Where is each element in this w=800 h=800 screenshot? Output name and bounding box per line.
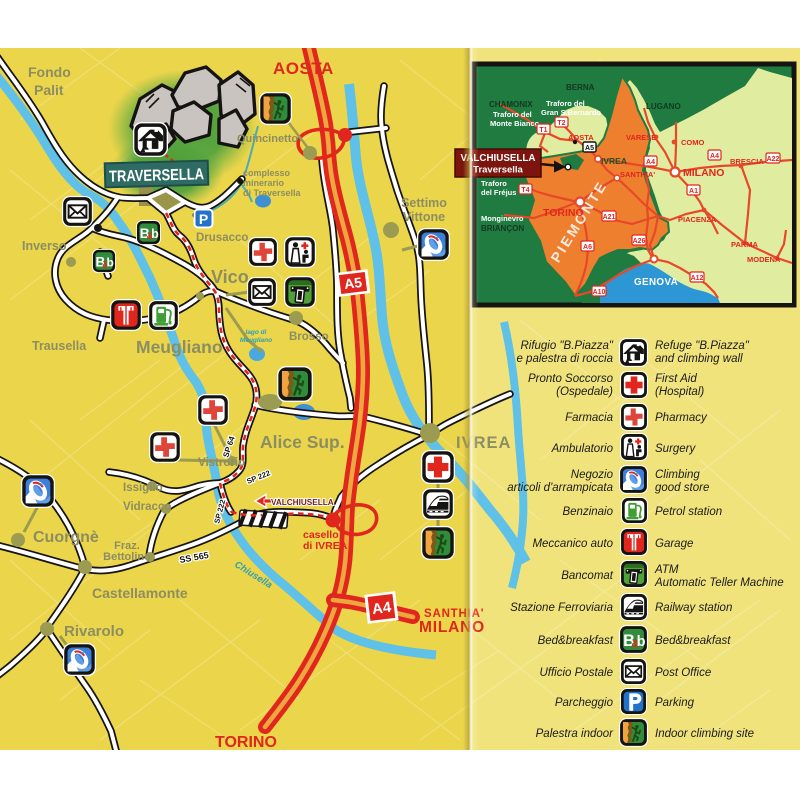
svg-text:Garage: Garage	[655, 538, 693, 550]
svg-text:Surgery: Surgery	[655, 443, 697, 455]
svg-text:Cuorgnè: Cuorgnè	[33, 529, 99, 546]
svg-text:First Aid: First Aid	[655, 373, 697, 385]
svg-text:A4: A4	[646, 159, 655, 166]
svg-text:Rifugio "B.Piazza": Rifugio "B.Piazza"	[520, 340, 613, 352]
svg-text:(Ospedale): (Ospedale)	[556, 386, 613, 398]
svg-text:MILANO: MILANO	[683, 167, 724, 179]
svg-text:TORINO: TORINO	[543, 207, 584, 219]
svg-text:A26: A26	[633, 238, 646, 245]
svg-text:Parcheggio: Parcheggio	[555, 697, 614, 709]
svg-text:Bettolino: Bettolino	[103, 551, 151, 563]
svg-text:Trausella: Trausella	[32, 339, 87, 353]
svg-text:VALCHIUSELLA: VALCHIUSELLA	[271, 498, 334, 507]
svg-text:(Hospital): (Hospital)	[655, 386, 704, 398]
svg-text:Meugliano: Meugliano	[136, 337, 223, 357]
svg-text:Settimo: Settimo	[401, 196, 447, 210]
svg-text:Issiglio: Issiglio	[123, 482, 163, 494]
svg-text:PIACENZA: PIACENZA	[678, 215, 717, 224]
svg-text:Refuge "B.Piazza": Refuge "B.Piazza"	[655, 340, 750, 352]
svg-text:T2: T2	[557, 120, 565, 127]
svg-text:Ufficio Postale: Ufficio Postale	[539, 667, 613, 679]
svg-text:VARESE: VARESE	[626, 133, 656, 142]
svg-text:Palestra indoor: Palestra indoor	[536, 728, 615, 740]
svg-text:lago di: lago di	[246, 329, 267, 336]
svg-text:di IVREA: di IVREA	[303, 540, 348, 552]
svg-text:Pharmacy: Pharmacy	[655, 412, 708, 424]
svg-text:Quincinetto: Quincinetto	[237, 133, 298, 145]
svg-text:Negozio: Negozio	[571, 469, 614, 481]
svg-text:Palit: Palit	[34, 82, 64, 98]
svg-text:good store: good store	[655, 482, 709, 494]
svg-text:e palestra di roccia: e palestra di roccia	[516, 353, 613, 365]
svg-text:A5: A5	[585, 145, 594, 152]
svg-text:PARMA: PARMA	[731, 240, 759, 249]
svg-text:Rivarolo: Rivarolo	[64, 623, 124, 640]
svg-text:di Traversella: di Traversella	[243, 188, 302, 198]
svg-text:Climbing: Climbing	[655, 469, 700, 481]
svg-text:Parking: Parking	[655, 697, 695, 709]
svg-text:MODENA: MODENA	[747, 255, 781, 264]
svg-text:T1: T1	[539, 127, 547, 134]
svg-text:Pronto Soccorso: Pronto Soccorso	[528, 373, 614, 385]
svg-text:A10: A10	[593, 289, 606, 296]
svg-text:Vistrorio: Vistrorio	[198, 457, 245, 469]
svg-text:A12: A12	[691, 275, 704, 282]
svg-text:Bancomat: Bancomat	[561, 570, 614, 582]
svg-text:T4: T4	[521, 187, 529, 194]
svg-text:Meccanico auto: Meccanico auto	[532, 538, 613, 550]
svg-text:Gran S.Bernardo: Gran S.Bernardo	[541, 108, 601, 117]
svg-text:GENOVA: GENOVA	[634, 277, 678, 288]
svg-text:and climbing wall: and climbing wall	[655, 353, 743, 365]
svg-text:Railway station: Railway station	[655, 602, 732, 614]
svg-text:Ambulatorio: Ambulatorio	[551, 443, 614, 455]
svg-text:A5: A5	[343, 274, 363, 292]
svg-text:BRIANÇON: BRIANÇON	[481, 224, 524, 233]
svg-text:ATM: ATM	[654, 564, 679, 576]
svg-text:A1: A1	[689, 188, 698, 195]
svg-text:BERNA: BERNA	[566, 83, 595, 92]
svg-text:BRESCIA: BRESCIA	[730, 157, 764, 166]
svg-text:articoli d'arrampicata: articoli d'arrampicata	[507, 482, 613, 494]
svg-text:Alice Sup.: Alice Sup.	[260, 432, 345, 452]
svg-text:Meugliano: Meugliano	[240, 337, 272, 344]
svg-text:Castellamonte: Castellamonte	[92, 585, 188, 601]
svg-text:A4: A4	[710, 153, 719, 160]
svg-text:Inverso: Inverso	[22, 239, 67, 253]
svg-text:CHAMONIX: CHAMONIX	[489, 100, 533, 109]
svg-text:Bed&breakfast: Bed&breakfast	[538, 635, 614, 647]
svg-text:Bed&breakfast: Bed&breakfast	[655, 635, 731, 647]
svg-text:A6: A6	[583, 244, 592, 251]
svg-text:AOSTA: AOSTA	[568, 133, 594, 142]
svg-text:minerario: minerario	[243, 178, 285, 188]
svg-text:Fondo: Fondo	[28, 64, 71, 80]
svg-text:SANTHIA': SANTHIA'	[620, 170, 655, 179]
svg-text:TORINO: TORINO	[215, 734, 277, 751]
svg-text:Automatic Teller Machine: Automatic Teller Machine	[654, 577, 784, 589]
svg-text:Stazione Ferroviaria: Stazione Ferroviaria	[510, 602, 613, 614]
svg-text:P: P	[199, 211, 208, 227]
svg-text:A4: A4	[371, 599, 393, 618]
svg-text:Vittone: Vittone	[403, 210, 445, 224]
svg-text:Traforo del: Traforo del	[546, 99, 585, 108]
svg-text:Traforo: Traforo	[481, 179, 507, 188]
svg-text:Petrol station: Petrol station	[655, 506, 722, 518]
svg-text:TRAVERSELLA: TRAVERSELLA	[109, 166, 205, 185]
svg-text:complesso: complesso	[243, 168, 291, 178]
svg-text:Indoor climbing site: Indoor climbing site	[655, 728, 754, 740]
svg-text:IVREA: IVREA	[601, 156, 627, 166]
svg-text:Vidracco: Vidracco	[123, 501, 171, 513]
svg-text:Monte Bianco: Monte Bianco	[490, 119, 540, 128]
svg-text:LUGANO: LUGANO	[646, 102, 681, 111]
svg-text:Traforo del: Traforo del	[493, 110, 532, 119]
svg-text:Farmacia: Farmacia	[565, 412, 613, 424]
svg-text:del Fréjus: del Fréjus	[481, 188, 516, 197]
svg-text:Benzinaio: Benzinaio	[562, 506, 613, 518]
svg-text:Brosso: Brosso	[289, 331, 329, 343]
svg-text:Traversella: Traversella	[473, 165, 523, 176]
svg-text:AOSTA: AOSTA	[273, 59, 334, 78]
svg-text:COMO: COMO	[681, 138, 704, 147]
svg-text:A22: A22	[767, 156, 780, 163]
svg-text:Drusacco: Drusacco	[196, 232, 248, 244]
svg-text:Vico: Vico	[211, 267, 249, 287]
svg-text:Post Office: Post Office	[655, 667, 711, 679]
svg-text:Monginevro: Monginevro	[481, 214, 524, 223]
svg-text:A21: A21	[603, 214, 616, 221]
